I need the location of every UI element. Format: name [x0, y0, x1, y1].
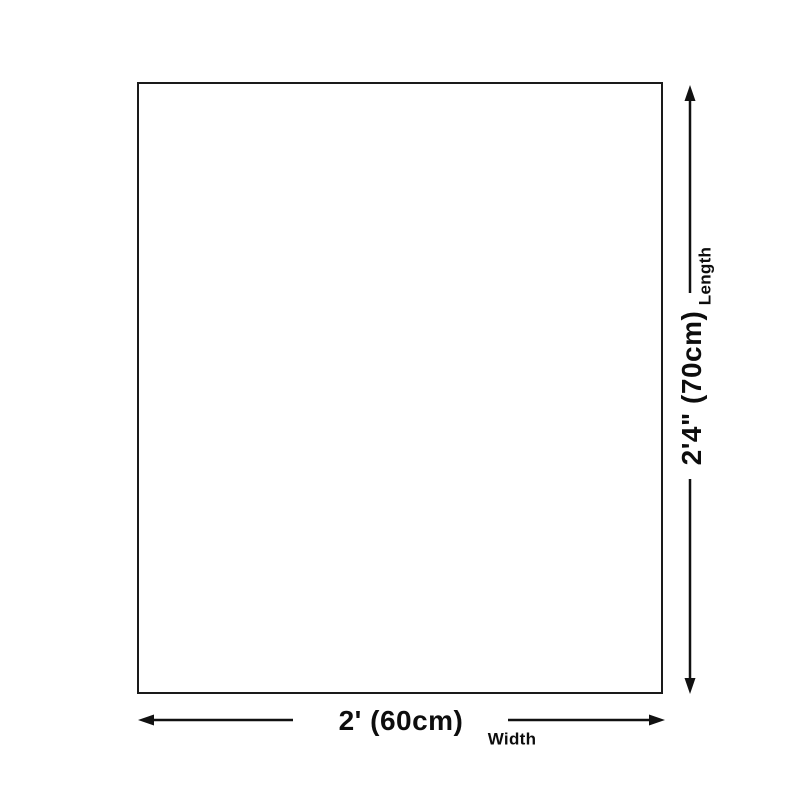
length-value-label: 2'4" (70cm): [678, 311, 706, 466]
width-value-label: 2' (60cm): [339, 707, 464, 735]
length-axis-label: Length: [697, 247, 714, 305]
width-axis-label: Width: [488, 731, 537, 748]
dimension-diagram: 2' (60cm) Width 2'4" (70cm) Length: [0, 0, 800, 800]
